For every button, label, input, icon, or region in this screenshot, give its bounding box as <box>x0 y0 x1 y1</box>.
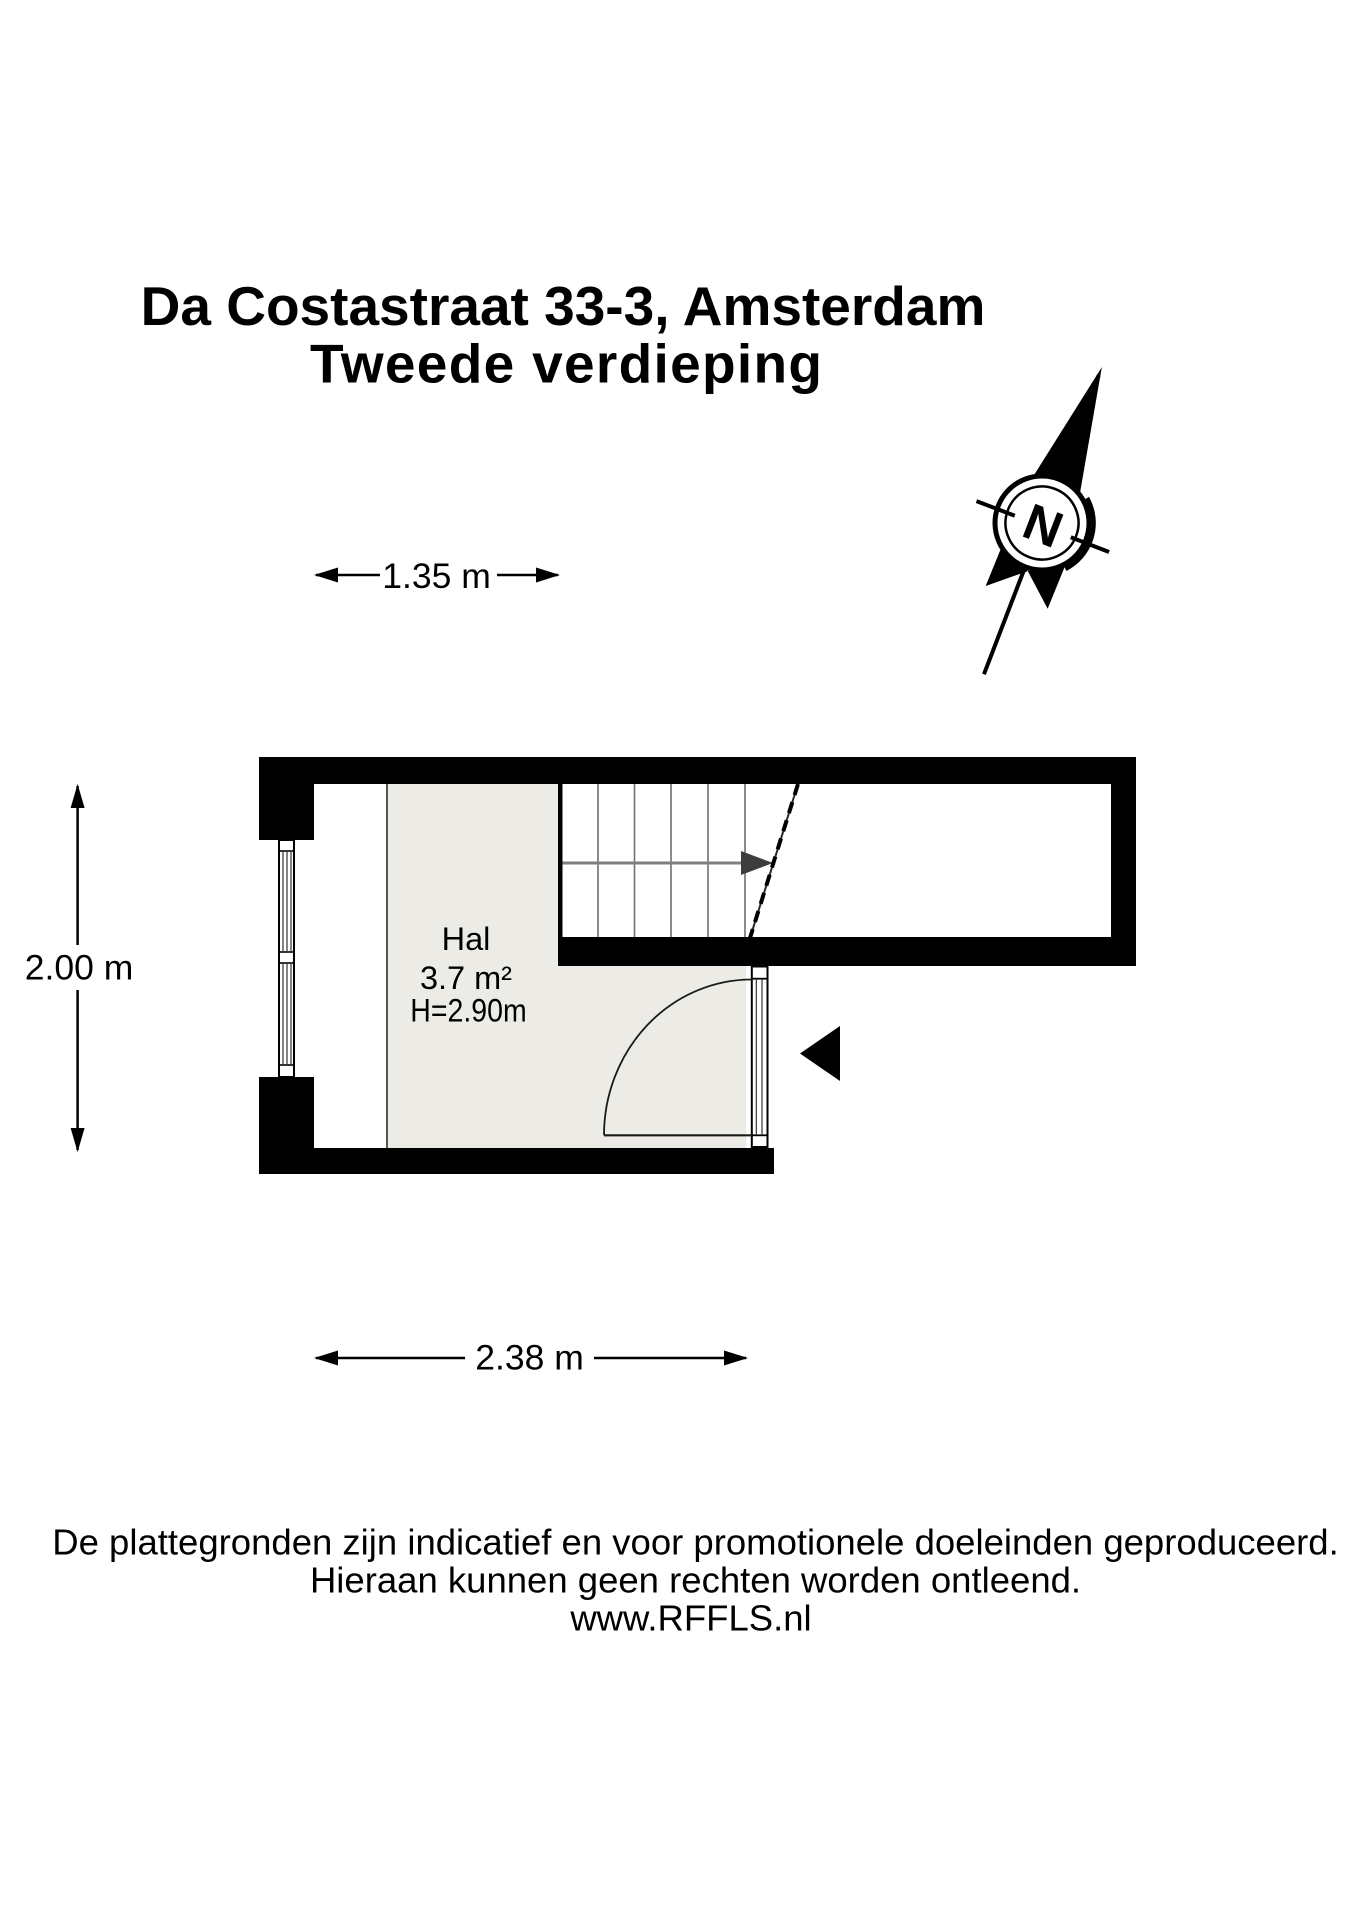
svg-text:Tweede verdieping: Tweede verdieping <box>310 333 822 395</box>
svg-text:Hieraan kunnen geen rechten wo: Hieraan kunnen geen rechten worden ontle… <box>310 1559 1081 1600</box>
svg-text:1.35 m: 1.35 m <box>382 556 491 596</box>
svg-text:Da Costastraat 33-3, Amsterdam: Da Costastraat 33-3, Amsterdam <box>141 275 986 337</box>
svg-text:www.RFFLS.nl: www.RFFLS.nl <box>569 1597 811 1638</box>
svg-text:H=2.90m: H=2.90m <box>410 993 526 1029</box>
svg-text:3.7 m²: 3.7 m² <box>420 960 512 996</box>
svg-text:2.38 m: 2.38 m <box>475 1338 584 1378</box>
svg-text:De plattegronden zijn indicati: De plattegronden zijn indicatief en voor… <box>52 1521 1338 1562</box>
svg-text:2.00 m: 2.00 m <box>25 948 134 988</box>
svg-text:Hal: Hal <box>442 921 491 957</box>
